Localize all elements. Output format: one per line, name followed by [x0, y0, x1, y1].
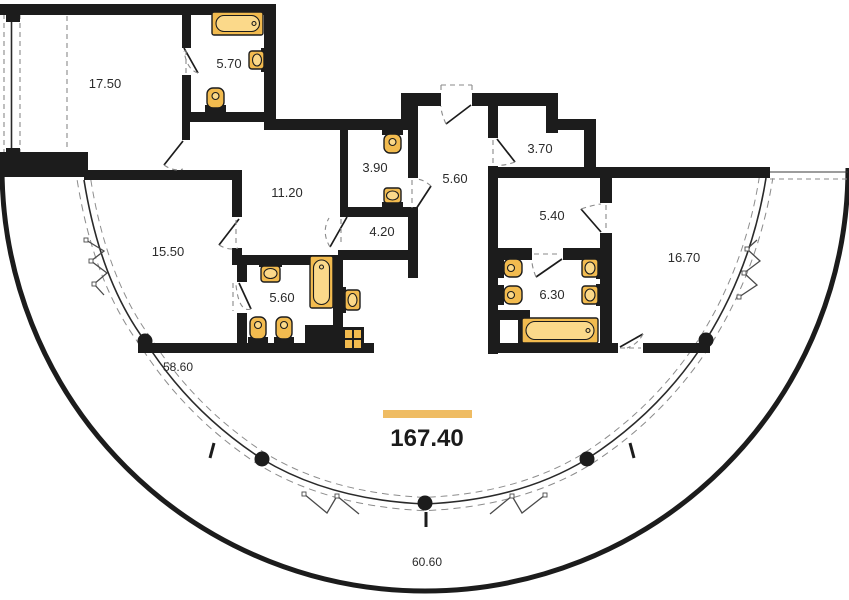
- room-area-label: 5.60: [442, 171, 467, 186]
- total-area-underline: [383, 410, 472, 418]
- total-area-label: 167.40: [390, 425, 463, 452]
- sink-icon: [582, 284, 602, 306]
- terrace-area-label: 58.60: [163, 360, 193, 374]
- toilet-icon: [498, 258, 522, 278]
- room-area-label: 3.90: [362, 160, 387, 175]
- bathtub-icon: [212, 12, 263, 35]
- window-sash-icon: [302, 492, 359, 514]
- room-area-label: 5.60: [269, 290, 294, 305]
- door-swing: [581, 204, 606, 232]
- door-swing: [532, 254, 562, 277]
- sink-icon: [382, 188, 403, 208]
- bathtub-icon: [522, 318, 598, 343]
- room-area-label: 3.70: [527, 141, 552, 156]
- door-swing: [325, 217, 347, 247]
- room-area-label: 4.20: [369, 224, 394, 239]
- sink-icon: [341, 287, 360, 313]
- floor-plan-page: 17.50 5.70 11.20 3.90 5.60 3.70 5.40 4.2…: [0, 0, 849, 600]
- sink-icon: [582, 257, 602, 279]
- toilet-icon: [248, 317, 268, 345]
- room-area-label: 5.70: [216, 56, 241, 71]
- toilet-icon: [498, 285, 522, 305]
- toilet-icon: [382, 128, 403, 153]
- room-area-label: 5.40: [539, 208, 564, 223]
- room-area-label: 17.50: [89, 76, 122, 91]
- room-area-label: 16.70: [668, 250, 701, 265]
- door-swing: [620, 334, 643, 348]
- balcony-parapet-arc: [2, 168, 848, 591]
- glazing-tick: [210, 443, 214, 458]
- walls: [0, 4, 770, 354]
- door-swing: [493, 139, 515, 165]
- glazing-tick: [630, 443, 634, 458]
- room-area-label: 6.30: [539, 287, 564, 302]
- door-swing: [412, 179, 431, 209]
- window-sash-icon: [737, 240, 760, 299]
- door-swing: [219, 219, 239, 249]
- room-area-label: 11.20: [271, 185, 303, 200]
- door-swing: [441, 85, 472, 124]
- balcony-area-label: 60.60: [412, 555, 442, 569]
- toilet-icon: [205, 88, 226, 113]
- toilet-icon: [274, 317, 294, 345]
- floor-plan: 17.50 5.70 11.20 3.90 5.60 3.70 5.40 4.2…: [0, 0, 849, 600]
- window-sash-icon: [84, 238, 107, 295]
- window-wall: [4, 13, 67, 158]
- door-swing: [164, 141, 183, 170]
- washing-machine-icon: [342, 327, 364, 350]
- door-swing: [233, 283, 251, 311]
- room-area-label: 15.50: [152, 244, 185, 259]
- sink-icon: [259, 262, 282, 282]
- sink-icon: [249, 48, 269, 72]
- bathtub-icon: [310, 256, 333, 308]
- door-swing: [184, 48, 198, 73]
